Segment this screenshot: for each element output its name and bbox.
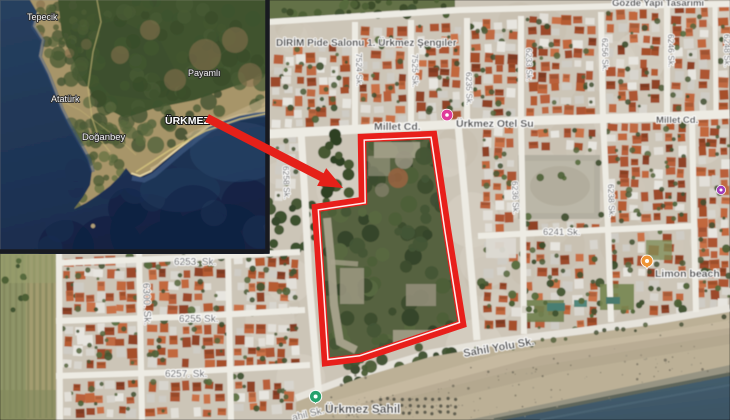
svg-text:6258 Sk.: 6258 Sk. bbox=[281, 166, 292, 200]
svg-text:6236 Sk.: 6236 Sk. bbox=[510, 181, 521, 215]
svg-text:Gözde Yapı Tasarımı: Gözde Yapı Tasarımı bbox=[612, 0, 704, 9]
svg-text:7524 Sk.: 7524 Sk. bbox=[354, 53, 365, 87]
svg-text:6235 Sk.: 6235 Sk. bbox=[464, 72, 475, 106]
svg-text:6300. Sk.: 6300. Sk. bbox=[140, 283, 152, 326]
svg-text:Ürkmez Otel Su: Ürkmez Otel Su bbox=[456, 117, 534, 130]
svg-text:Limon beach: Limon beach bbox=[655, 268, 720, 280]
svg-text:Tepecik: Tepecik bbox=[27, 12, 58, 22]
svg-text:6256 Sk.: 6256 Sk. bbox=[600, 38, 611, 72]
svg-text:Atatürk: Atatürk bbox=[51, 94, 80, 104]
svg-text:Ürkmez Sahil: Ürkmez Sahil bbox=[325, 401, 400, 416]
svg-text:7525 Sk.: 7525 Sk. bbox=[410, 54, 421, 88]
svg-text:Millet Cd.: Millet Cd. bbox=[374, 121, 421, 133]
svg-text:6257. Sk.: 6257. Sk. bbox=[165, 369, 207, 380]
svg-text:6233 Sk.: 6233 Sk. bbox=[524, 48, 535, 82]
svg-text:6241 Sk.: 6241 Sk. bbox=[543, 227, 581, 238]
svg-text:6248 Sk.: 6248 Sk. bbox=[722, 34, 730, 68]
svg-text:Doğanbey: Doğanbey bbox=[82, 132, 126, 143]
svg-text:Payamlı: Payamlı bbox=[188, 68, 221, 78]
svg-text:6255 Sk.: 6255 Sk. bbox=[179, 314, 218, 325]
svg-text:ÜRKMEZ: ÜRKMEZ bbox=[165, 114, 210, 127]
svg-text:6246 Sk.: 6246 Sk. bbox=[666, 34, 677, 68]
svg-text:DİRİM Pide Salonu 1. Ürkmez Şe: DİRİM Pide Salonu 1. Ürkmez Şengiler bbox=[276, 36, 457, 49]
svg-text:Millet Cd.: Millet Cd. bbox=[656, 115, 698, 126]
svg-text:6238 Sk.: 6238 Sk. bbox=[606, 184, 617, 218]
svg-text:6253. Sk.: 6253. Sk. bbox=[174, 257, 216, 268]
